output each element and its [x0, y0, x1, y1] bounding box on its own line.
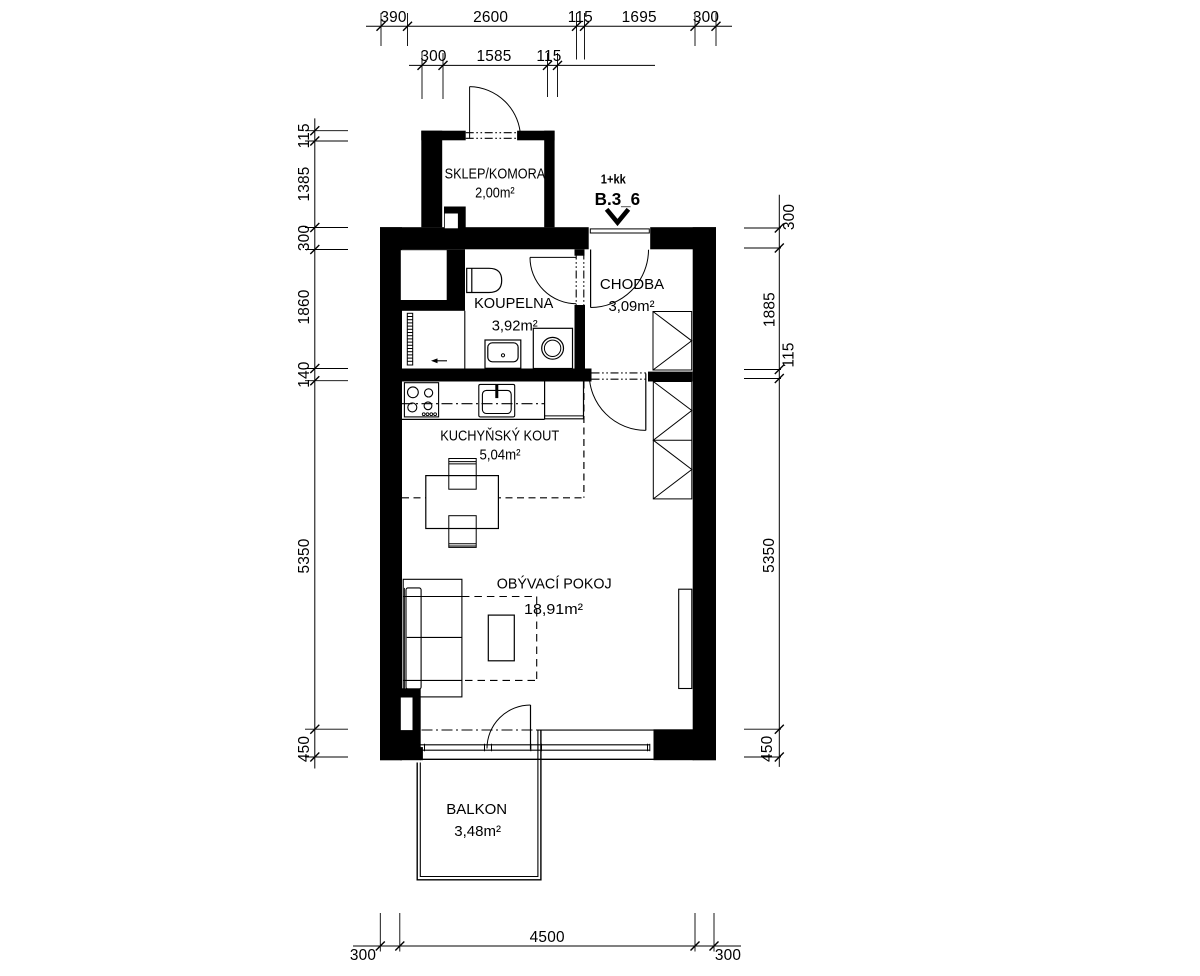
- svg-text:KUCHYŇSKÝ KOUT: KUCHYŇSKÝ KOUT: [440, 427, 559, 444]
- svg-text:300: 300: [296, 225, 313, 251]
- svg-text:115: 115: [568, 9, 593, 26]
- svg-text:1585: 1585: [476, 48, 511, 65]
- svg-text:BALKON: BALKON: [446, 801, 507, 818]
- svg-text:300: 300: [715, 947, 741, 964]
- svg-text:3,92m²: 3,92m²: [492, 317, 538, 334]
- svg-text:1860: 1860: [296, 289, 313, 324]
- svg-text:1385: 1385: [296, 166, 313, 201]
- svg-text:SKLEP/KOMORA: SKLEP/KOMORA: [445, 165, 546, 182]
- svg-text:18,91m²: 18,91m²: [524, 601, 583, 618]
- svg-text:5350: 5350: [761, 538, 778, 573]
- svg-text:CHODBA: CHODBA: [600, 276, 664, 293]
- svg-text:OBÝVACÍ POKOJ: OBÝVACÍ POKOJ: [497, 576, 612, 593]
- svg-text:140: 140: [296, 361, 313, 387]
- svg-text:1695: 1695: [622, 9, 657, 26]
- svg-text:4500: 4500: [530, 929, 565, 946]
- svg-text:5,04m²: 5,04m²: [480, 447, 521, 464]
- svg-text:300: 300: [420, 48, 446, 65]
- svg-text:300: 300: [781, 204, 798, 230]
- svg-text:B.3_6: B.3_6: [595, 189, 641, 209]
- svg-text:450: 450: [296, 736, 313, 762]
- svg-text:3,48m²: 3,48m²: [454, 823, 501, 840]
- svg-text:5350: 5350: [296, 538, 313, 573]
- svg-text:115: 115: [536, 48, 561, 65]
- svg-text:115: 115: [296, 123, 313, 148]
- svg-text:2,00m²: 2,00m²: [475, 184, 515, 201]
- svg-text:390: 390: [380, 9, 406, 26]
- svg-text:1885: 1885: [761, 292, 778, 327]
- svg-text:KOUPELNA: KOUPELNA: [474, 295, 553, 312]
- svg-text:115: 115: [780, 342, 797, 367]
- svg-text:3,09m²: 3,09m²: [609, 298, 655, 315]
- svg-text:450: 450: [759, 736, 776, 762]
- svg-text:300: 300: [693, 9, 719, 26]
- svg-text:300: 300: [350, 947, 376, 964]
- svg-text:1+kk: 1+kk: [601, 172, 627, 187]
- svg-text:2600: 2600: [473, 9, 508, 26]
